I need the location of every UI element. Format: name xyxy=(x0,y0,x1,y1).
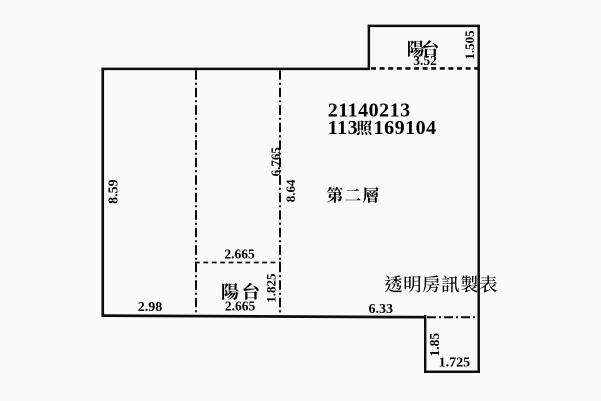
svg-text:1.85: 1.85 xyxy=(427,333,442,357)
svg-text:8.59: 8.59 xyxy=(107,179,122,204)
svg-text:6.765: 6.765 xyxy=(268,147,283,177)
svg-text:1.505: 1.505 xyxy=(462,30,477,60)
svg-text:8.64: 8.64 xyxy=(283,179,298,202)
svg-text:1.725: 1.725 xyxy=(439,356,471,371)
svg-text:169104: 169104 xyxy=(374,117,437,139)
svg-text:113: 113 xyxy=(328,117,358,139)
svg-text:6.33: 6.33 xyxy=(368,302,393,317)
svg-text:2.665: 2.665 xyxy=(224,247,255,262)
svg-text:3.52: 3.52 xyxy=(413,53,437,68)
svg-text:2.665: 2.665 xyxy=(225,298,256,313)
svg-text:2.98: 2.98 xyxy=(138,300,163,315)
svg-text:1.825: 1.825 xyxy=(263,273,278,303)
